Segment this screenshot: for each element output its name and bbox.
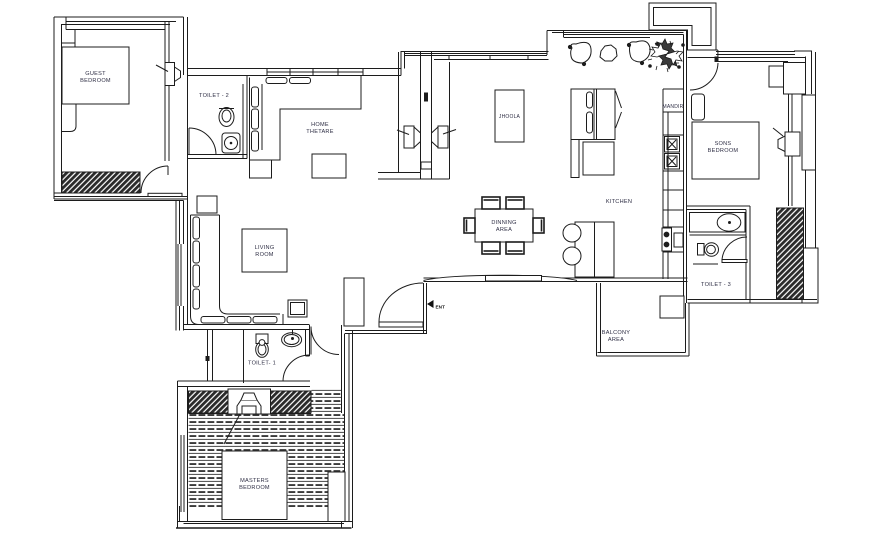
svg-text:LIVING: LIVING: [255, 245, 275, 251]
svg-text:GUEST: GUEST: [85, 71, 106, 77]
svg-text:ROOM: ROOM: [255, 252, 273, 258]
svg-text:TOILET- 1: TOILET- 1: [248, 361, 276, 367]
svg-text:HOME: HOME: [311, 122, 329, 128]
svg-text:SONS: SONS: [715, 141, 732, 147]
svg-text:AREA: AREA: [496, 227, 512, 233]
svg-text:TOILET - 2: TOILET - 2: [199, 93, 229, 99]
svg-text:BALCONY: BALCONY: [602, 330, 631, 336]
svg-text:THETARE: THETARE: [306, 129, 333, 135]
svg-text:BEDROOM: BEDROOM: [708, 148, 739, 154]
svg-text:AREA: AREA: [608, 337, 624, 343]
svg-text:BEDROOM: BEDROOM: [239, 485, 270, 491]
svg-text:JHOOLA: JHOOLA: [499, 114, 521, 120]
svg-text:MASTERS: MASTERS: [240, 478, 269, 484]
svg-text:DINNING: DINNING: [491, 220, 516, 226]
svg-text:ENT: ENT: [436, 305, 446, 310]
svg-text:MANDIR: MANDIR: [663, 104, 684, 110]
svg-text:KITCHEN: KITCHEN: [606, 199, 632, 205]
svg-text:BEDROOM: BEDROOM: [80, 78, 111, 84]
svg-text:TOILET - 3: TOILET - 3: [701, 282, 731, 288]
